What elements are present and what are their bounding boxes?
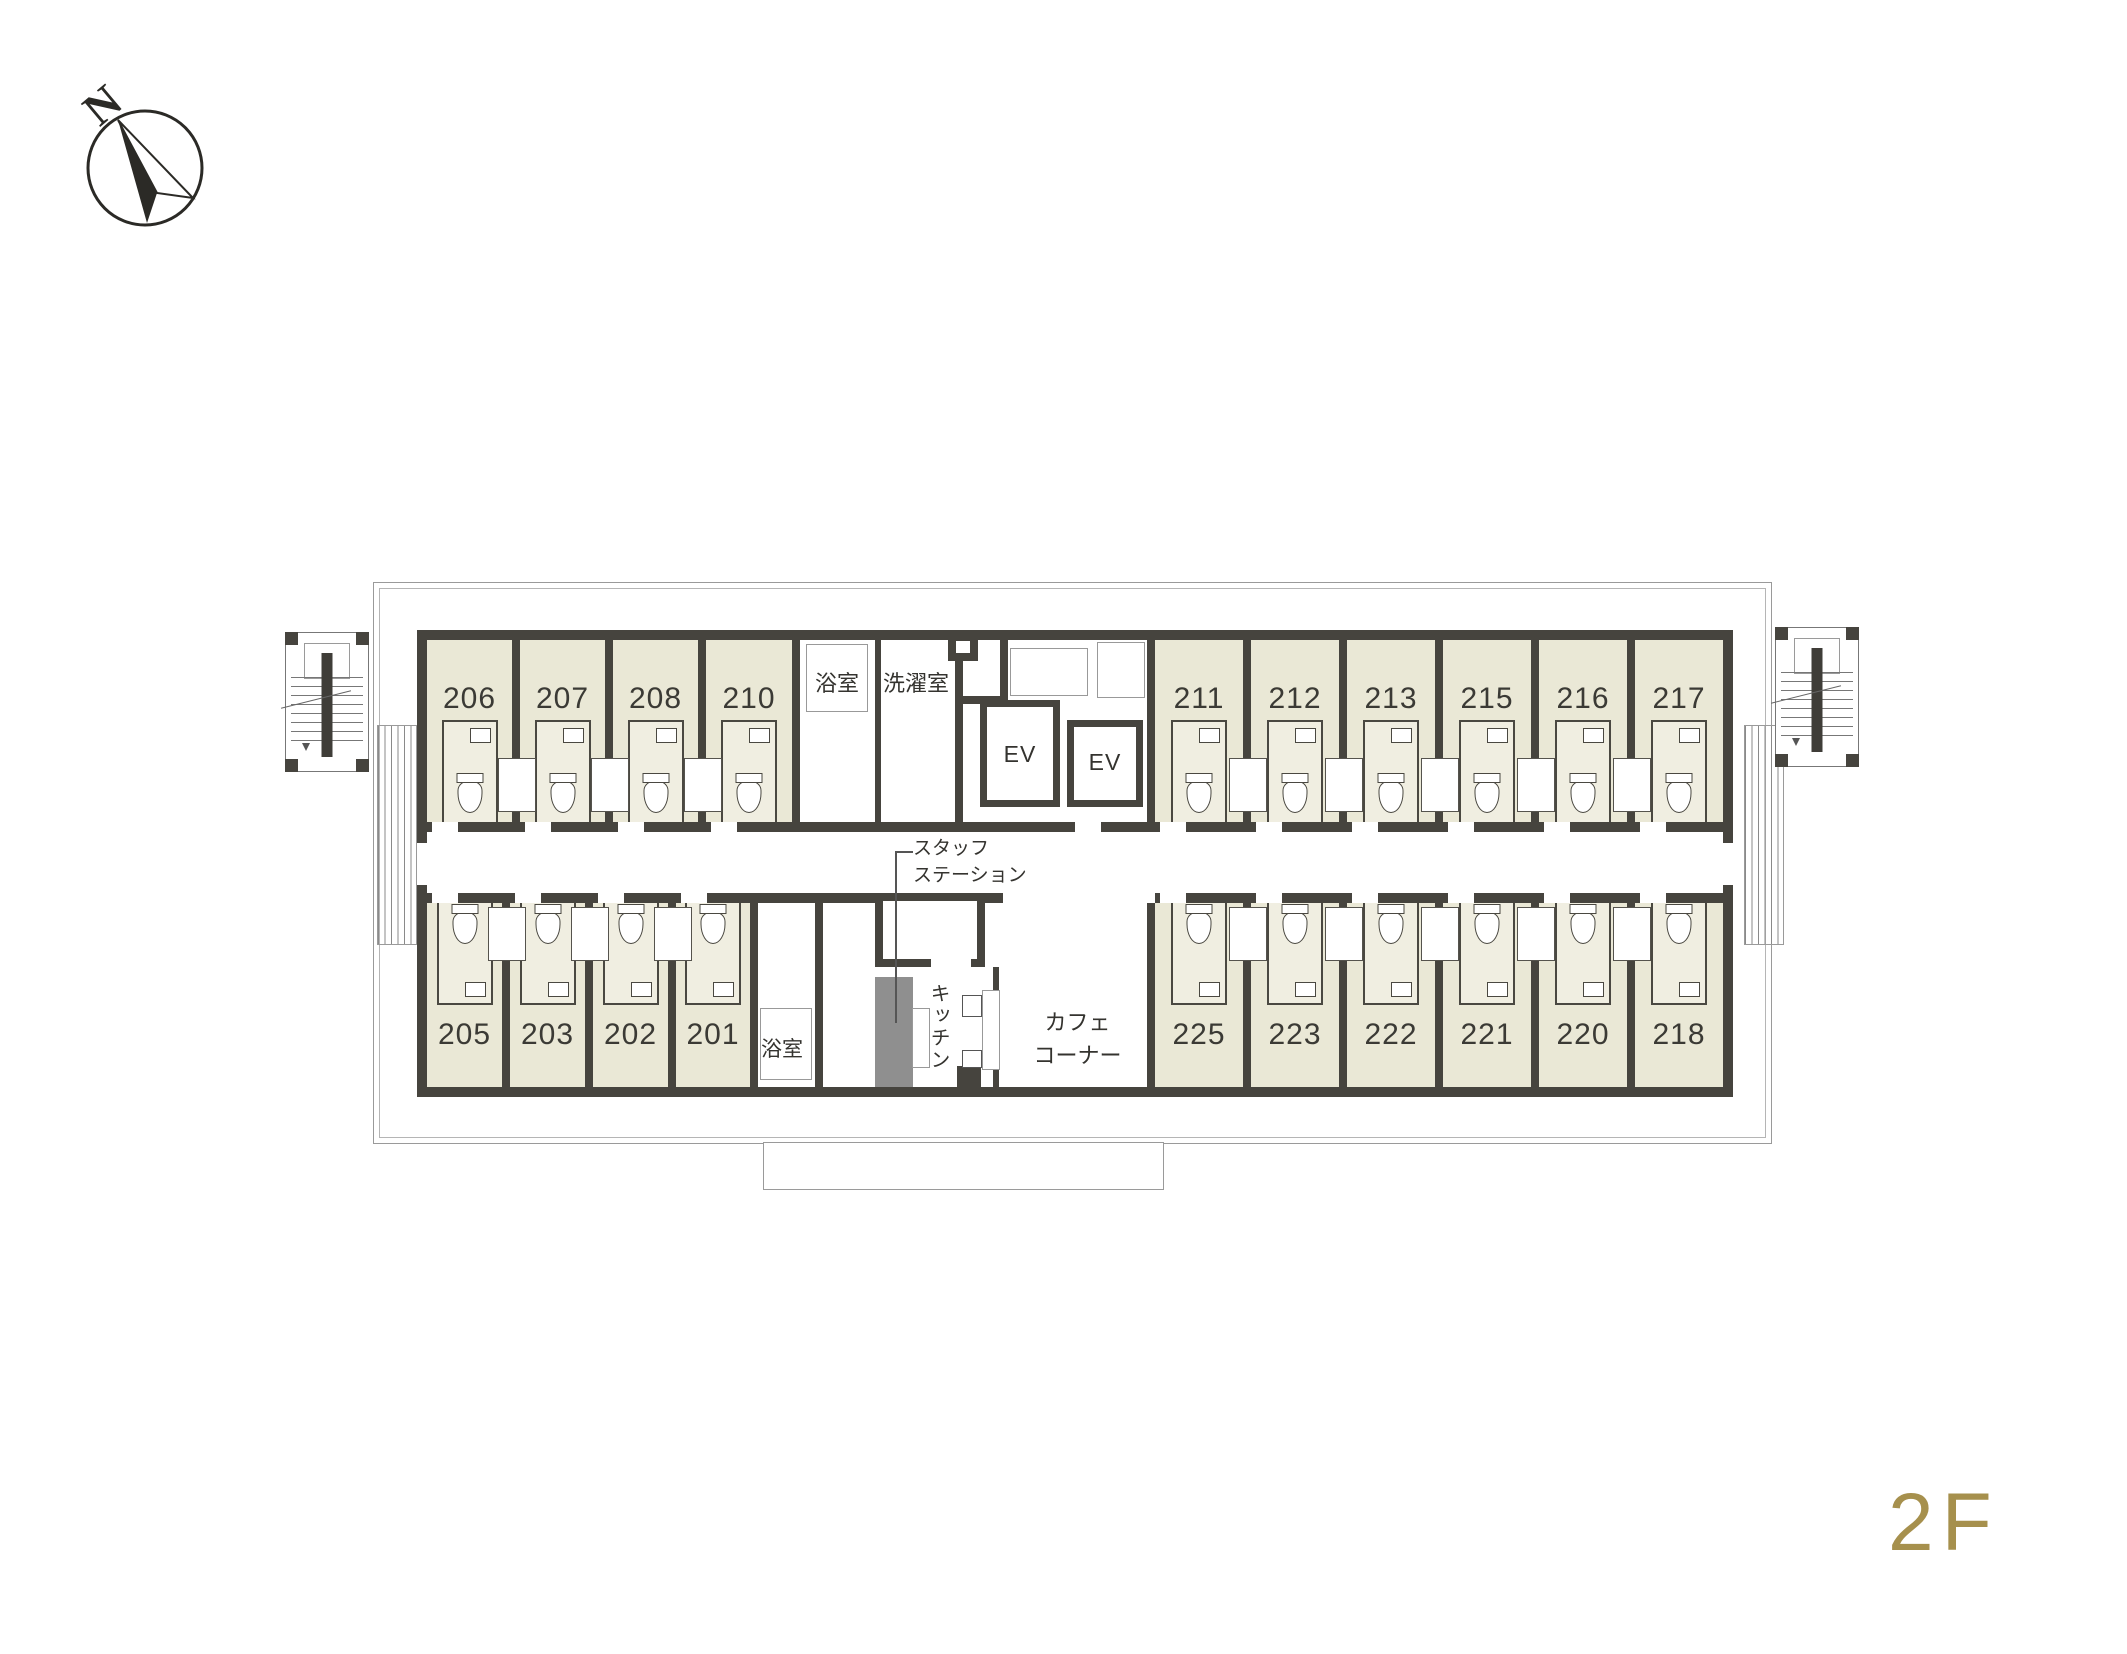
north-compass-icon: N <box>70 68 220 238</box>
unit-bath-icon <box>685 903 741 1005</box>
room-door <box>681 893 707 903</box>
balcony-hatch-left <box>377 725 417 945</box>
room-door <box>1352 822 1378 832</box>
room-door <box>1160 822 1186 832</box>
corridor <box>427 832 1723 893</box>
closet-box <box>1517 758 1555 812</box>
closet-box <box>684 758 722 812</box>
room-door <box>1160 893 1186 903</box>
closet-box <box>1421 758 1459 812</box>
room-number: 212 <box>1251 640 1339 716</box>
staff-station-room <box>875 893 985 967</box>
unit-bath-icon <box>1555 720 1611 822</box>
bath-room-north-label: 浴室 <box>798 666 876 698</box>
closet-box <box>1421 907 1459 961</box>
utility-room-outline <box>1097 642 1145 698</box>
unit-bath-icon <box>1651 720 1707 822</box>
room-door <box>1640 893 1666 903</box>
unit-bath-icon <box>1267 720 1323 822</box>
utility-room-outline <box>1010 648 1088 696</box>
room-number: 217 <box>1635 640 1723 716</box>
staff-station-label-line1: スタッフ <box>913 838 989 859</box>
room-door <box>515 893 541 903</box>
unit-bath-icon <box>1555 903 1611 1005</box>
unit-bath-icon <box>437 903 493 1005</box>
unit-bath-icon <box>1363 720 1419 822</box>
kitchen-counter <box>982 990 1000 1070</box>
room-number: 208 <box>613 640 698 716</box>
unit-bath-icon <box>1171 903 1227 1005</box>
room-number: 210 <box>706 640 792 716</box>
room-door <box>618 822 644 832</box>
cafe-corner-label-line2: コーナー <box>1033 1043 1121 1068</box>
room-door <box>1352 893 1378 903</box>
room-number: 206 <box>427 640 512 716</box>
elevator-2-label: EV <box>1080 749 1130 776</box>
kitchen-label: キッチン <box>924 983 953 1083</box>
wall-stub <box>957 1066 981 1087</box>
room-door <box>1544 822 1570 832</box>
room-door <box>1256 822 1282 832</box>
stairs-east <box>1775 627 1859 767</box>
cafe-corridor-opening <box>1003 893 1155 903</box>
staff-station-label-line2: ステーション <box>913 865 1027 886</box>
corridor-exit-east <box>1723 843 1733 885</box>
unit-bath-icon <box>1267 903 1323 1005</box>
room-door <box>598 893 624 903</box>
shaft-pillar <box>948 633 978 661</box>
unit-bath-icon <box>1171 720 1227 822</box>
room-number: 213 <box>1347 640 1435 716</box>
unit-bath-icon <box>1363 903 1419 1005</box>
room-door <box>1640 822 1666 832</box>
room-door <box>432 822 458 832</box>
closet-box <box>591 758 629 812</box>
closet-box <box>571 907 609 961</box>
room-door <box>711 822 737 832</box>
room-number: 215 <box>1443 640 1531 716</box>
room-door <box>1256 893 1282 903</box>
room-door <box>1448 822 1474 832</box>
stairs-west <box>285 632 369 772</box>
unit-bath-icon <box>628 720 684 822</box>
unit-bath-icon <box>721 720 777 822</box>
unit-bath-icon <box>520 903 576 1005</box>
staff-station-leader-line <box>895 852 897 1023</box>
unit-bath-icon <box>603 903 659 1005</box>
kitchen-stove-icon <box>962 1050 982 1068</box>
unit-bath-icon <box>442 720 498 822</box>
room-door <box>1448 893 1474 903</box>
unit-bath-icon <box>1651 903 1707 1005</box>
service-core <box>875 977 913 1087</box>
unit-bath-icon <box>535 720 591 822</box>
room-door <box>525 822 551 832</box>
closet-box <box>498 758 536 812</box>
closet-box <box>1517 907 1555 961</box>
entrance-canopy-below <box>763 1142 1164 1190</box>
closet-box <box>1325 907 1363 961</box>
hall-door <box>1075 822 1101 832</box>
floor-plan-canvas: N 206 207 <box>0 0 2127 1654</box>
corridor-exit-west <box>417 843 427 885</box>
closet-box <box>1325 758 1363 812</box>
room-number: 207 <box>520 640 605 716</box>
closet-box <box>1229 907 1267 961</box>
room-number: 216 <box>1539 640 1627 716</box>
room-door <box>1544 893 1570 903</box>
staff-station-leader-tick <box>895 851 913 853</box>
closet-box <box>1613 758 1651 812</box>
closet-box <box>1229 758 1267 812</box>
bath-room-south-label: 浴室 <box>750 1033 814 1063</box>
room-door <box>432 893 458 903</box>
kitchen-sink-icon <box>962 995 982 1017</box>
laundry-room-label: 洗濯室 <box>870 666 962 698</box>
floor-label: 2F <box>1888 1476 2000 1570</box>
room-number: 211 <box>1155 640 1243 716</box>
staff-station-label: スタッフ ステーション <box>913 836 1027 890</box>
wall-segment <box>958 696 1006 704</box>
wall-segment <box>1000 640 1008 704</box>
elevator-1-label: EV <box>995 741 1045 768</box>
unit-bath-icon <box>1459 720 1515 822</box>
closet-box <box>1613 907 1651 961</box>
unit-bath-icon <box>1459 903 1515 1005</box>
cafe-corner-label-line1: カフェ <box>1044 1010 1110 1035</box>
closet-box <box>654 907 692 961</box>
closet-box <box>488 907 526 961</box>
cafe-corner-label: カフェ コーナー <box>1000 1006 1155 1072</box>
